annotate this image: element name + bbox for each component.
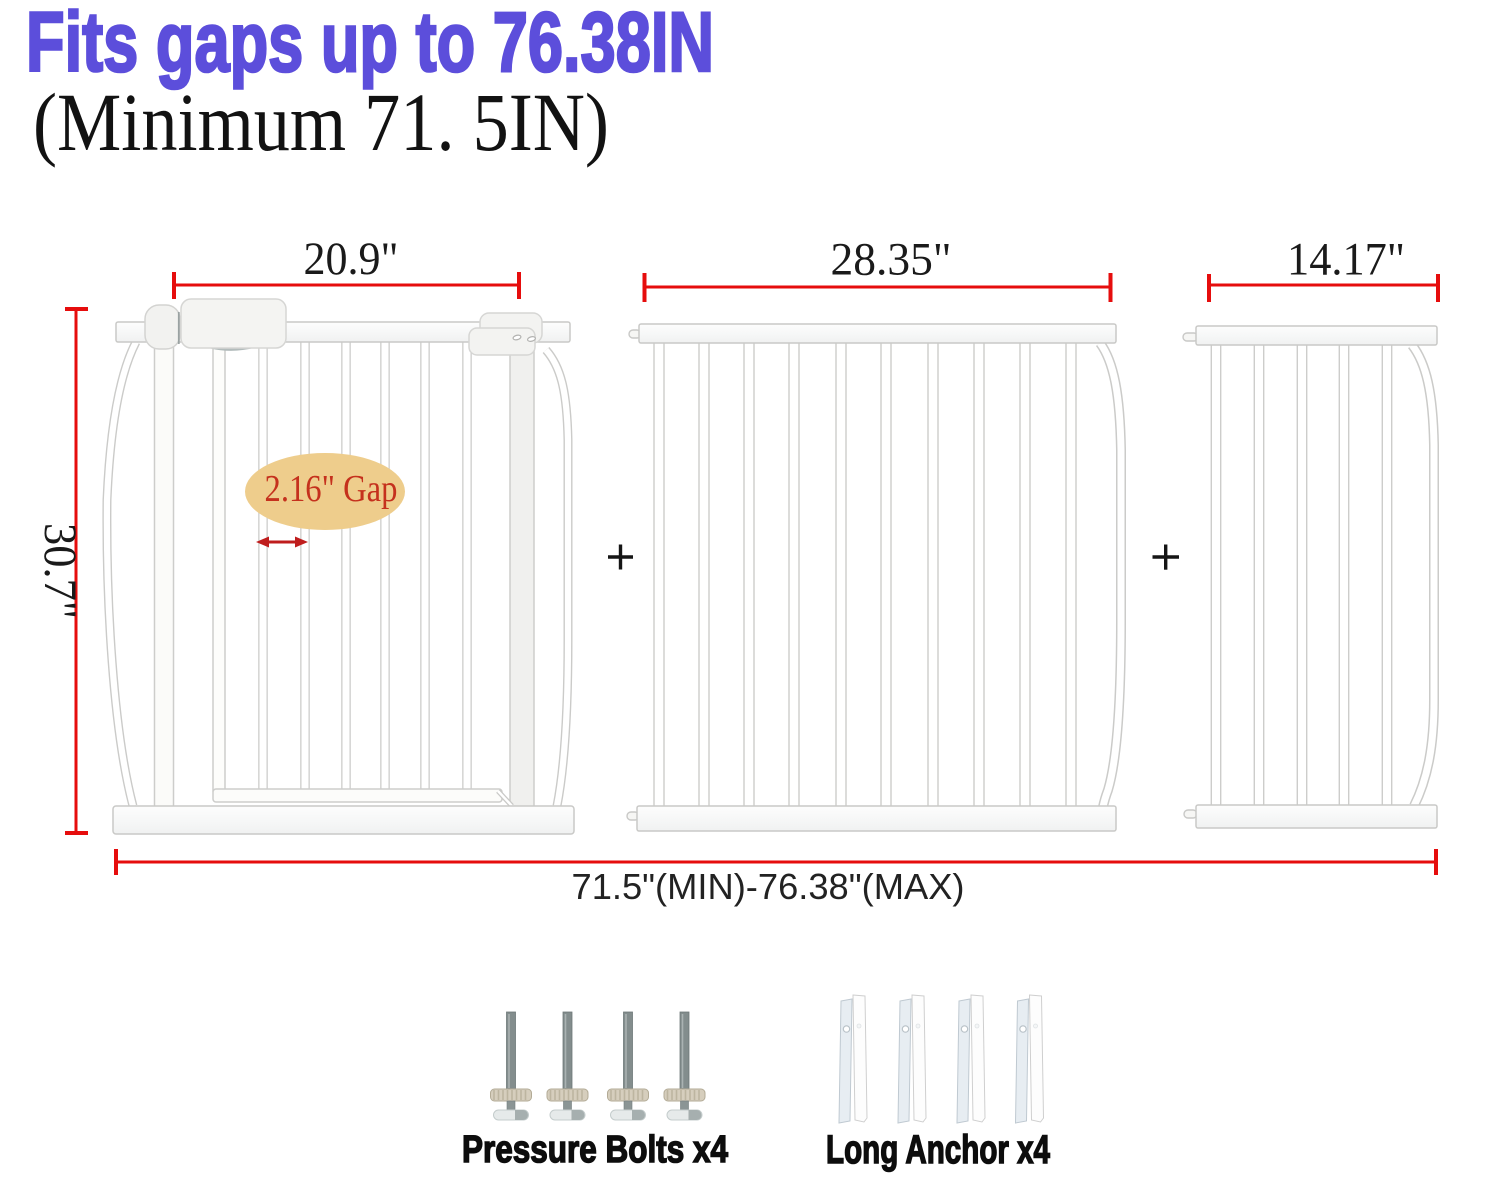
svg-text:Fits gaps up to 76.38IN: Fits gaps up to 76.38IN — [26, 0, 714, 89]
svg-text:28.35": 28.35" — [831, 234, 952, 286]
svg-text:(Minimum 71. 5IN): (Minimum 71. 5IN) — [33, 78, 609, 168]
svg-text:20.9": 20.9" — [304, 233, 399, 285]
svg-text:Long Anchor x4: Long Anchor x4 — [826, 1128, 1051, 1172]
svg-text:71.5"(MIN)-76.38"(MAX): 71.5"(MIN)-76.38"(MAX) — [572, 866, 965, 907]
svg-text:Pressure Bolts x4: Pressure Bolts x4 — [462, 1129, 728, 1171]
svg-text:14.17": 14.17" — [1287, 234, 1405, 286]
svg-text:2.16" Gap: 2.16" Gap — [265, 468, 398, 510]
svg-text:30.7": 30.7" — [34, 523, 86, 619]
